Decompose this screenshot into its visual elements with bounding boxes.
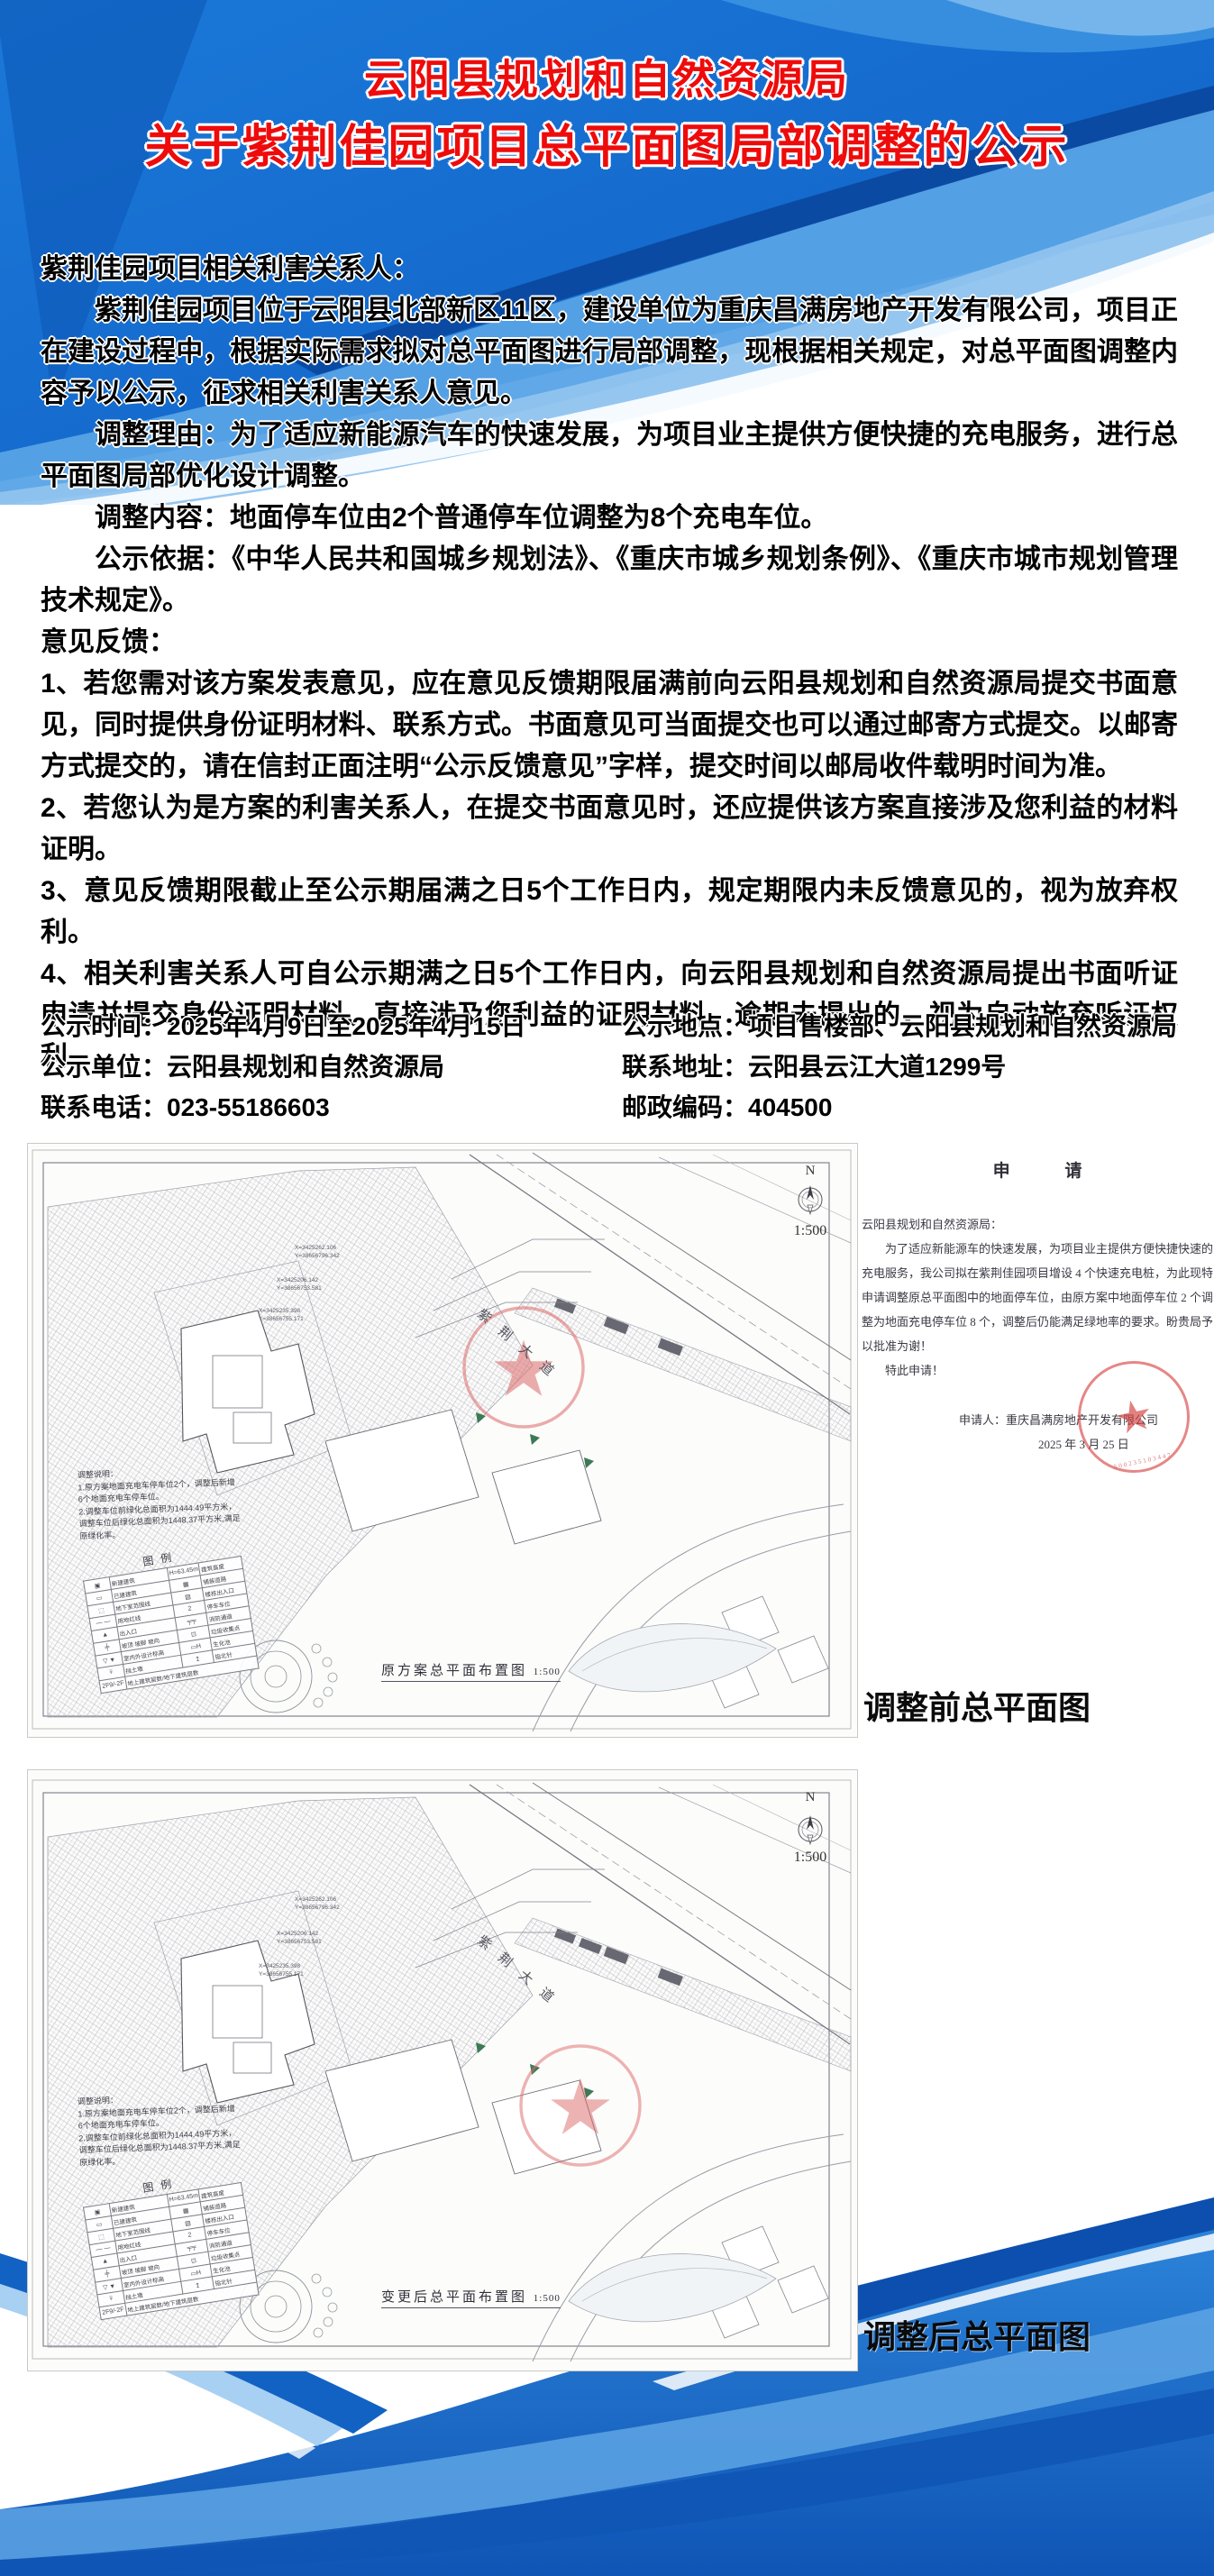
application-letter: 申 请 云阳县规划和自然资源局： 为了适应新能源车的快速发展，为项目业主提供方便…: [862, 1145, 1213, 1514]
paragraph-project: 紫荆佳园项目位于云阳县北部新区11区，建设单位为重庆昌满房地产开发有限公司，项目…: [41, 290, 1178, 415]
letter-salutation: 云阳县规划和自然资源局：: [862, 1212, 1213, 1237]
info-left: 公示时间：2025年4月9日至2025年4月15日 公示单位：云阳县规划和自然资…: [41, 1006, 525, 1128]
feedback-item-3: 3、意见反馈期限截止至公示期届满之日5个工作日内，规定期限内未反馈意见的，视为放…: [41, 871, 1178, 954]
caption-after: 调整后总平面图: [863, 2311, 1091, 2358]
notice-title-line2: 关于紫荆佳园项目总平面图局部调整的公示: [0, 112, 1214, 182]
info-unit: 公示单位：云阳县规划和自然资源局: [41, 1046, 525, 1087]
plan-note: 调整说明： 1.原方案地面充电车停车位2个，调整后新增 6个地面充电车停车位。 …: [78, 1464, 260, 1543]
caption-before: 调整前总平面图: [863, 1682, 1091, 1729]
info-address: 联系地址：云阳县云江大道1299号: [622, 1046, 1177, 1087]
info-right: 公示地点：项目售楼部、云阳县规划和自然资源局 联系地址：云阳县云江大道1299号…: [622, 1006, 1177, 1128]
plan-legend: 图例 ▣新建建筑H=63.45m建筑高度 ▭已建建筑▦铺装道路 ⬚地下室范围线▨…: [80, 1539, 260, 1694]
north-label: N: [774, 1790, 846, 1805]
paragraph-basis: 公示依据：《中华人民共和国城乡规划法》、《重庆市城乡规划条例》、《重庆市城市规划…: [41, 539, 1178, 622]
info-time: 公示时间：2025年4月9日至2025年4月15日: [41, 1006, 525, 1046]
notice-body: 紫荆佳园项目相关利害关系人： 紫荆佳园项目位于云阳县北部新区11区，建设单位为重…: [41, 249, 1178, 1078]
info-phone: 联系电话：023-55186603: [41, 1087, 525, 1128]
compass-icon: [799, 1815, 822, 1844]
drawing-title: 变更后总平面布置图 1:500: [381, 2287, 561, 2308]
coordinate-annotation: X=3425262.106Y=38656796.342: [295, 1896, 340, 1912]
notice-title-line1: 云阳县规划和自然资源局: [0, 47, 1214, 112]
letter-title: 申 请: [862, 1157, 1213, 1182]
letter-paragraph: 为了适应新能源车的快速发展，为项目业主提供方便快捷快速的充电服务，我公司拟在紫荆…: [862, 1237, 1213, 1358]
scale-label: 1:500: [774, 1223, 846, 1239]
paragraph-reason: 调整理由：为了适应新能源汽车的快速发展，为项目业主提供方便快捷的充电服务，进行总…: [41, 415, 1178, 498]
scale-label: 1:500: [774, 1850, 846, 1866]
site-plan-before-image: N 1:500 调整说明： 1.原方案地面充电车停车位2个，调整后新增 6个地面…: [27, 1143, 858, 1738]
paragraph-content: 调整内容：地面停车位由2个普通停车位调整为8个充电车位。: [41, 498, 1178, 539]
north-label: N: [774, 1164, 846, 1179]
compass-icon: [799, 1185, 822, 1214]
info-place: 公示地点：项目售楼部、云阳县规划和自然资源局: [622, 1006, 1177, 1046]
feedback-item-2: 2、若您认为是方案的利害关系人，在提交书面意见时，还应提供该方案直接涉及您利益的…: [41, 788, 1178, 871]
notice-page: 云阳县规划和自然资源局 关于紫荆佳园项目总平面图局部调整的公示 紫荆佳园项目相关…: [0, 0, 1214, 2576]
feedback-heading: 意见反馈：: [41, 622, 1178, 663]
site-plan-after-image: N 1:500 调整说明： 1.原方案地面充电车停车位2个，调整后新增 6个地面…: [27, 1769, 858, 2371]
feedback-item-1: 1、若您需对该方案发表意见，应在意见反馈期限届满前向云阳县规划和自然资源局提交书…: [41, 663, 1178, 788]
coordinate-annotation: X=3425206.142Y=38656753.581: [277, 1277, 322, 1293]
coordinate-annotation: X=3425235.398Y=38656755.171: [259, 1308, 304, 1323]
coordinate-annotation: X=3425235.398Y=38656755.171: [259, 1963, 304, 1978]
drawing-title: 原方案总平面布置图 1:500: [381, 1660, 561, 1682]
plan-legend: 图例 ▣新建建筑H=63.45m建筑高度 ▭已建建筑▦铺装道路 ⬚地下室范围线▨…: [80, 2165, 260, 2320]
coordinate-annotation: X=3425262.106Y=38656796.342: [295, 1245, 340, 1260]
info-zip: 邮政编码：404500: [622, 1087, 1177, 1128]
salutation: 紫荆佳园项目相关利害关系人：: [41, 249, 1178, 290]
plan-note: 调整说明： 1.原方案地面充电车停车位2个，调整后新增 6个地面充电车停车位。 …: [78, 2090, 260, 2170]
notice-title: 云阳县规划和自然资源局 关于紫荆佳园项目总平面图局部调整的公示: [0, 47, 1214, 182]
coordinate-annotation: X=3425206.142Y=38656753.581: [277, 1931, 322, 1946]
